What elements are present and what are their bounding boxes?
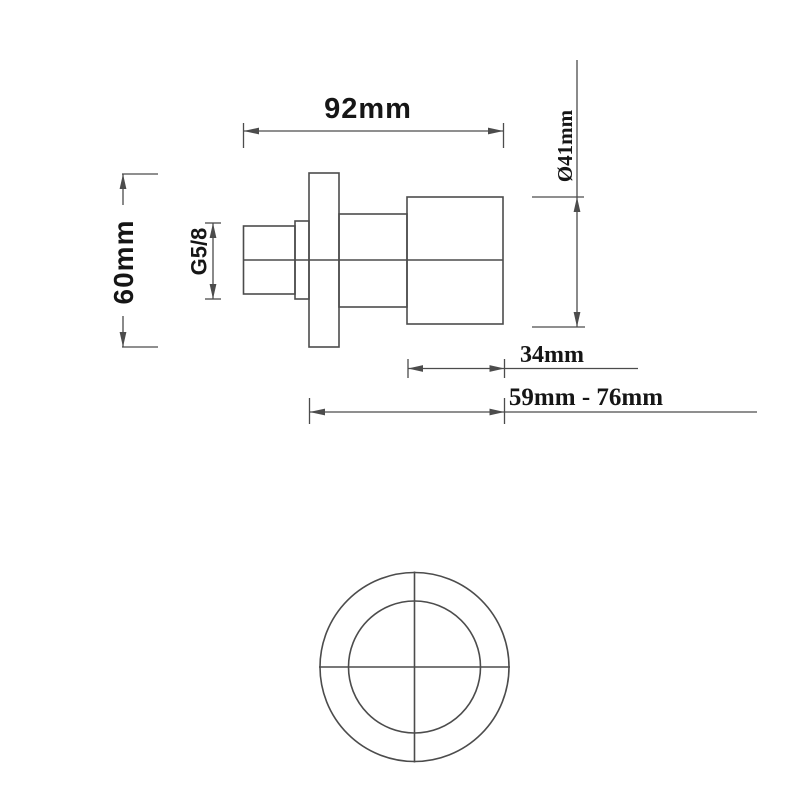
front-view [319,572,510,763]
dim-label-overall-width: 92mm [298,93,438,125]
dim-label-handle-diameter: Ø41mm [552,96,578,196]
technical-drawing-canvas: 92mm 60mm G5/8 Ø41mm 34mm 59mm - 76mm [0,0,800,800]
arrowhead-left [310,409,326,416]
arrowhead-left [408,365,423,372]
arrowhead-right [488,128,504,135]
dim-label-handle-length: 34mm [507,341,597,369]
dim-overall-width [244,123,504,148]
arrowhead-down [574,312,581,327]
dim-label-depth-range: 59mm - 76mm [501,382,671,412]
arrowhead-left [244,128,260,135]
dim-label-thread-size: G5/8 [187,212,212,292]
arrowhead-up [574,197,581,212]
arrowhead-up [120,174,127,189]
side-view [244,173,504,347]
arrowhead-down [120,332,127,347]
dim-label-flange-height: 60mm [108,207,140,317]
arrowhead-right [490,365,505,372]
